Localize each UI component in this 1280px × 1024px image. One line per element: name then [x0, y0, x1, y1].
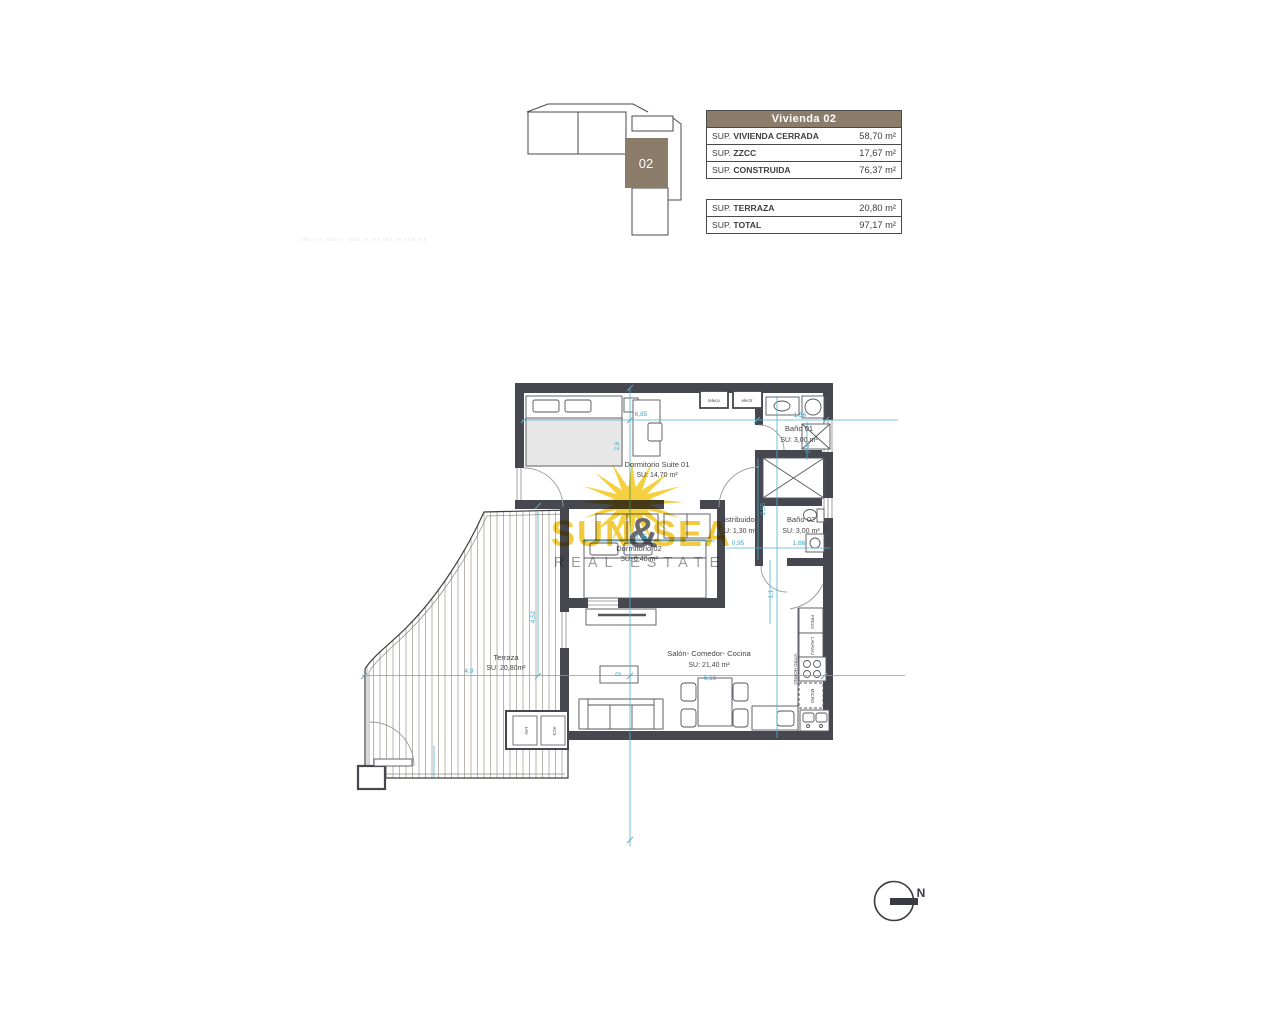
dim-label: 69	[615, 672, 621, 678]
fridge-label: FRIGO	[810, 615, 815, 629]
table-row: SUP. TOTAL 97,17 m²	[707, 216, 901, 233]
area-value: 20,80 m²	[859, 203, 896, 213]
room-area-terraza: SU: 20,80m²	[486, 665, 526, 672]
water-heater-label: ACS	[552, 726, 557, 735]
key-plan: 02	[480, 90, 690, 250]
dim-label: 1,66	[793, 540, 806, 547]
room-area-dorm02: SU: 8,40 m²	[620, 556, 658, 563]
area-table-main: Vivienda 02 SUP. VIVIENDA CERRADA 58,70 …	[706, 110, 902, 179]
hob-label: VITRO HORNO	[793, 654, 798, 686]
washer-label: LAV.	[524, 727, 529, 736]
dim-label: 6,85	[635, 411, 648, 418]
illegible-caption: ıııı ııı ıııı ıı ııııı ıı ııı ıııı ıı ıı…	[301, 237, 471, 243]
dim-label: 0,95	[732, 540, 745, 547]
room-label-salon: Salón- Comedor- Cocina	[667, 649, 751, 658]
dishwasher-label: LAVAVAJ	[810, 637, 815, 655]
area-table-header: Vivienda 02	[707, 111, 901, 127]
dim-label: 1,56	[794, 412, 807, 419]
compass-needle	[890, 898, 918, 905]
table-row: SUP. TERRAZA 20,80 m²	[707, 200, 901, 216]
room-label-bano02: Baño 02	[787, 515, 815, 524]
compass-north-label: N	[917, 886, 926, 900]
table-row: SUP. CONSTRUIDA 76,37 m²	[707, 161, 901, 178]
dim-label: 2,45	[805, 440, 812, 453]
dim-label: 6,16	[704, 675, 717, 682]
floor-plan: teleco electr LAV. ACS	[340, 370, 920, 860]
teleco-box-label: teleco	[708, 398, 720, 403]
dim-label: 2,6	[614, 441, 621, 450]
room-area-suite: SU: 14,70 m²	[636, 472, 678, 479]
room-area-bano02: SU: 3,00 m²	[782, 528, 820, 535]
dim-label: 4,9	[465, 668, 474, 675]
room-label-dorm02: Dormitorio 02	[616, 544, 662, 553]
dim-label: 3,45	[635, 534, 648, 541]
room-area-bano01: SU: 3,00 m²	[780, 437, 818, 444]
key-plan-unit-number: 02	[639, 156, 653, 171]
table-row: SUP. ZZCC 17,67 m²	[707, 144, 901, 161]
dim-label: 2,55	[760, 502, 767, 515]
floorplan-page: 02 Vivienda 02 SUP. VIVIENDA CERRADA 58,…	[0, 0, 1280, 1024]
room-area-distribuidor: SU: 1,30 m²	[719, 528, 757, 535]
electr-box-label: electr	[742, 398, 753, 403]
area-value: 17,67 m²	[859, 148, 896, 158]
room-label-bano01: Baño 01	[785, 424, 813, 433]
area-value: 76,37 m²	[859, 165, 896, 175]
table-row: SUP. VIVIENDA CERRADA 58,70 m²	[707, 127, 901, 144]
room-area-salon: SU: 21,40 m²	[688, 662, 730, 669]
microwave-label: MICRO	[810, 689, 815, 704]
room-label-suite: Dormitorio Suite 01	[625, 460, 690, 469]
dim-label: 4,52	[530, 610, 537, 623]
north-arrow: N	[855, 865, 945, 945]
area-value: 58,70 m²	[859, 131, 896, 141]
area-table-terrace: SUP. TERRAZA 20,80 m² SUP. TOTAL 97,17 m…	[706, 199, 902, 234]
area-table: Vivienda 02 SUP. VIVIENDA CERRADA 58,70 …	[706, 110, 902, 234]
room-label-distribuidor: Distribuidor	[719, 515, 758, 524]
dim-label: 1,1	[768, 589, 775, 598]
room-label-terraza: Terraza	[493, 653, 519, 662]
area-value: 97,17 m²	[859, 220, 896, 230]
